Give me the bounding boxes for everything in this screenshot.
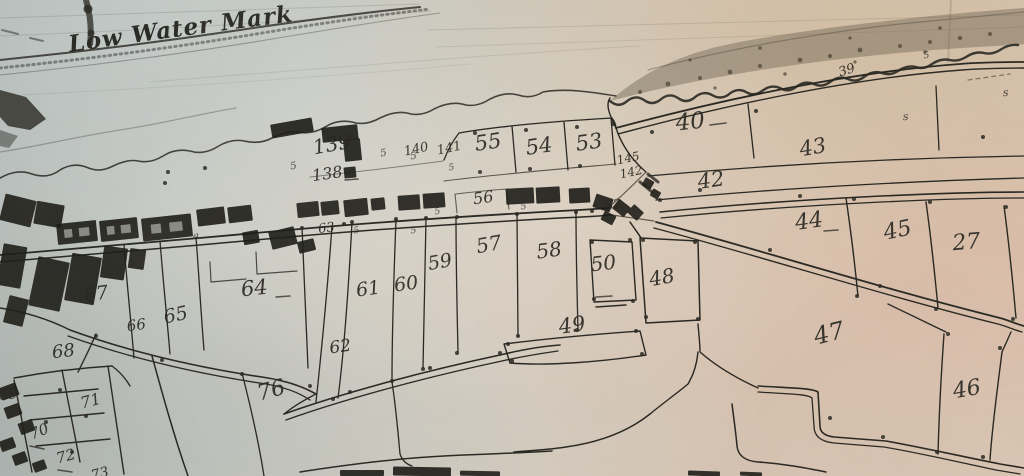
map-canvas: Low Water Mark bbox=[0, 0, 1024, 476]
paper-grain-texture bbox=[0, 0, 1024, 476]
scanned-map: Low Water Mark bbox=[0, 0, 1024, 476]
